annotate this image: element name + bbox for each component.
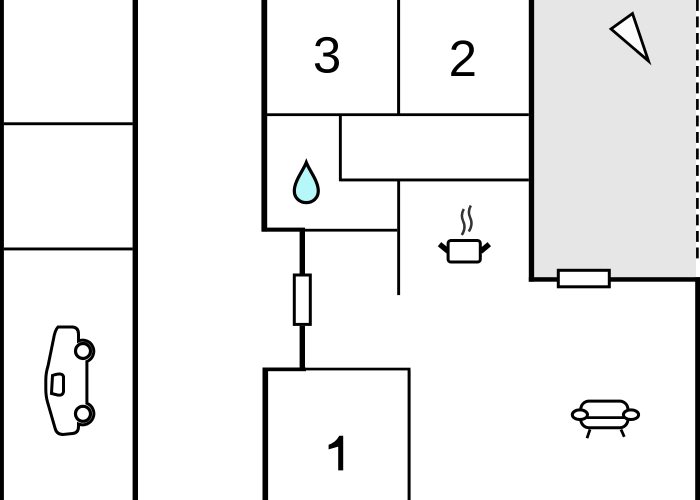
svg-text:3: 3: [313, 26, 341, 83]
svg-text:2: 2: [449, 30, 477, 87]
